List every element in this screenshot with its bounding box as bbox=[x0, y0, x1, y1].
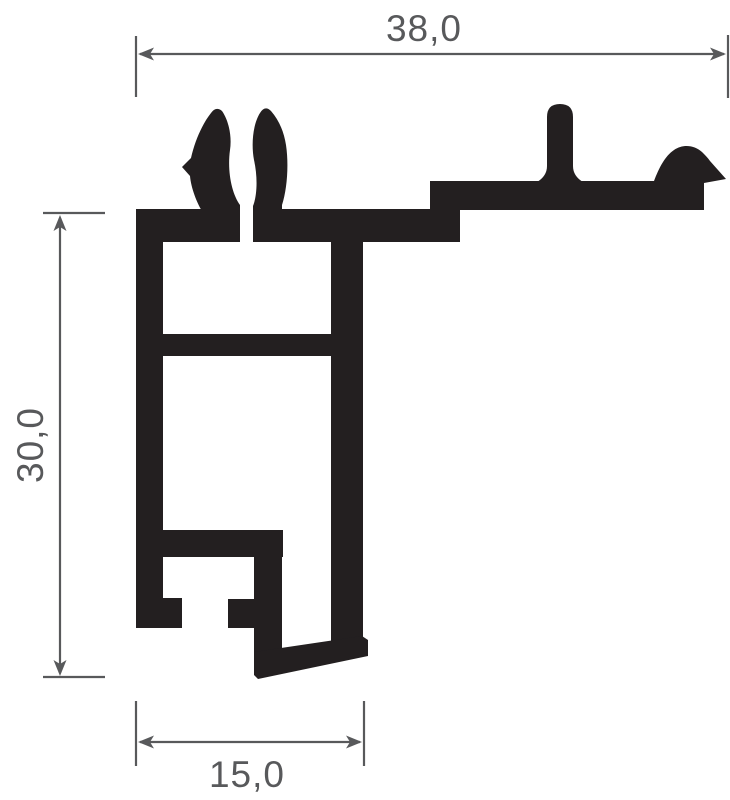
profile-bottom-tooth bbox=[228, 599, 258, 628]
profile-cross-section bbox=[136, 104, 726, 679]
drawing-canvas: 38,0 30,0 15,0 bbox=[0, 0, 730, 800]
profile-gasket-prong-left bbox=[182, 109, 240, 211]
dimension-bottom-label: 15,0 bbox=[209, 754, 285, 795]
dimension-left: 30,0 bbox=[10, 213, 105, 677]
profile-left-wall bbox=[136, 209, 163, 628]
profile-left-foot bbox=[136, 598, 182, 628]
profile-technical-drawing: 38,0 30,0 15,0 bbox=[0, 0, 730, 800]
dimension-left-label: 30,0 bbox=[10, 407, 51, 483]
dimension-left-lines bbox=[43, 213, 105, 677]
profile-top-flange-right bbox=[253, 209, 460, 242]
dimension-top-label: 38,0 bbox=[386, 8, 462, 49]
dimension-bottom: 15,0 bbox=[136, 701, 364, 795]
profile-gasket-prong-right bbox=[253, 108, 288, 211]
dimension-top: 38,0 bbox=[136, 8, 728, 98]
profile-middle-web bbox=[163, 334, 333, 356]
profile-arm-stub bbox=[537, 104, 583, 182]
profile-right-wall bbox=[331, 240, 363, 646]
